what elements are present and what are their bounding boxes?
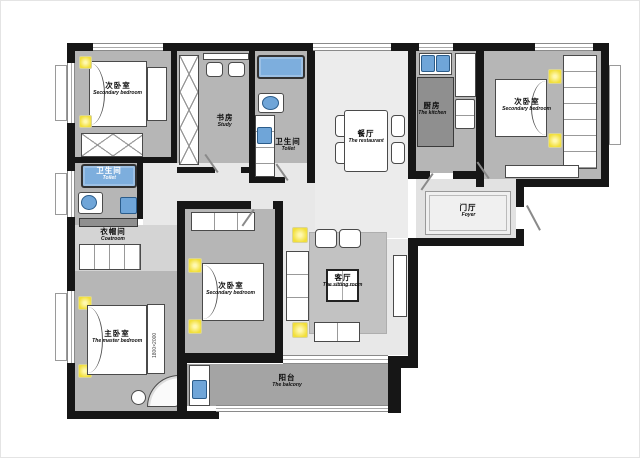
dining-table [344,110,388,172]
nightstand-lamp [79,56,92,69]
floor-balcony [187,364,388,406]
fridge [455,99,475,129]
window-sill [55,293,67,361]
window [313,43,391,51]
door-entry [526,205,541,231]
window-sill [609,65,621,145]
window [67,63,75,123]
wall-bath-left-right [137,161,143,219]
headboard-arc [88,307,103,373]
wall-balcony-right [388,368,401,413]
vanity [255,115,275,177]
wall-bedroom-mid-left [177,201,185,363]
armchair [339,229,361,248]
stool [131,390,146,405]
desk [203,53,249,60]
toilet-bowl [81,195,97,210]
armchair [315,229,337,248]
dresser [505,165,579,178]
wall-foyer-bottom [408,238,524,246]
headboard-arc [531,81,546,135]
loveseat [314,322,360,342]
sink [120,197,137,214]
wall-study-right [249,43,255,177]
wall-bedroom-tl-bottom [67,157,177,163]
kitchen-sink [436,55,450,72]
wall-balcony-corner [388,356,418,368]
window [93,43,163,51]
bed [202,263,264,321]
desk-chair [206,62,223,77]
wall-outer-bottom [67,411,219,419]
coffee-table [326,269,359,302]
nightstand-lamp [188,319,202,334]
foyer-rug [425,191,511,235]
side-table [292,322,308,338]
balcony-sliding-door [283,355,388,364]
side-table [292,227,308,243]
wall-bath-top-right [307,43,315,183]
laundry-sink [192,380,207,399]
sofa [286,251,309,321]
wall-dining-kitchen [408,43,416,179]
window [419,43,453,51]
nightstand-lamp [188,258,202,273]
wall-outer-right [601,43,609,187]
sink [257,127,272,144]
bed [495,79,547,137]
wall-bedroom-mid-top [177,201,251,209]
kitchen-island [417,77,454,147]
nightstand-lamp [548,69,562,84]
window [535,43,593,51]
wall-entry [516,187,524,207]
vanity-counter [79,218,138,227]
wall-bedroom-tr-bottom [516,179,609,187]
dining-chair [391,142,405,164]
window [67,291,75,363]
wardrobe [79,244,141,270]
bed-size-annotation: 1800×2000 [152,318,158,358]
window [67,171,75,217]
wall-bedroom-mid-bottom [177,353,283,363]
closet [179,55,199,165]
headboard-arc [203,265,218,319]
bathtub [257,55,305,79]
nightstand-lamp [548,133,562,148]
wardrobe [81,133,143,157]
floor-plan: 次卧室 Secondary bedroom 书房 Study 卫生间 Toile… [0,0,640,458]
bathtub [81,164,137,188]
window-sill [55,65,67,121]
wall-study-bottom [177,167,215,173]
wall-bath-top-bottom [249,177,285,183]
window-sill [55,173,67,215]
kitchen-sink [421,55,435,72]
desk-chair [228,62,245,77]
balcony-railing [216,405,388,412]
wall-bedroom-tl-right [171,43,177,163]
nightstand-lamp [79,115,92,128]
wall-study-bottom [241,167,249,173]
tv-cabinet [393,255,407,317]
wall-master-balcony [177,363,187,413]
counter [455,53,476,97]
dining-chair [391,115,405,137]
wall-kitchen-bottom [408,171,430,179]
headboard-arc [90,63,105,125]
bed [87,305,147,375]
wall-bedroom-mid-top [273,201,283,209]
toilet-bowl [262,96,279,110]
bed [89,61,147,127]
wall-sitting-right [408,238,418,358]
wardrobe [563,55,597,169]
bedside-console [147,67,167,121]
wall-bedroom-mid-right [275,209,283,355]
